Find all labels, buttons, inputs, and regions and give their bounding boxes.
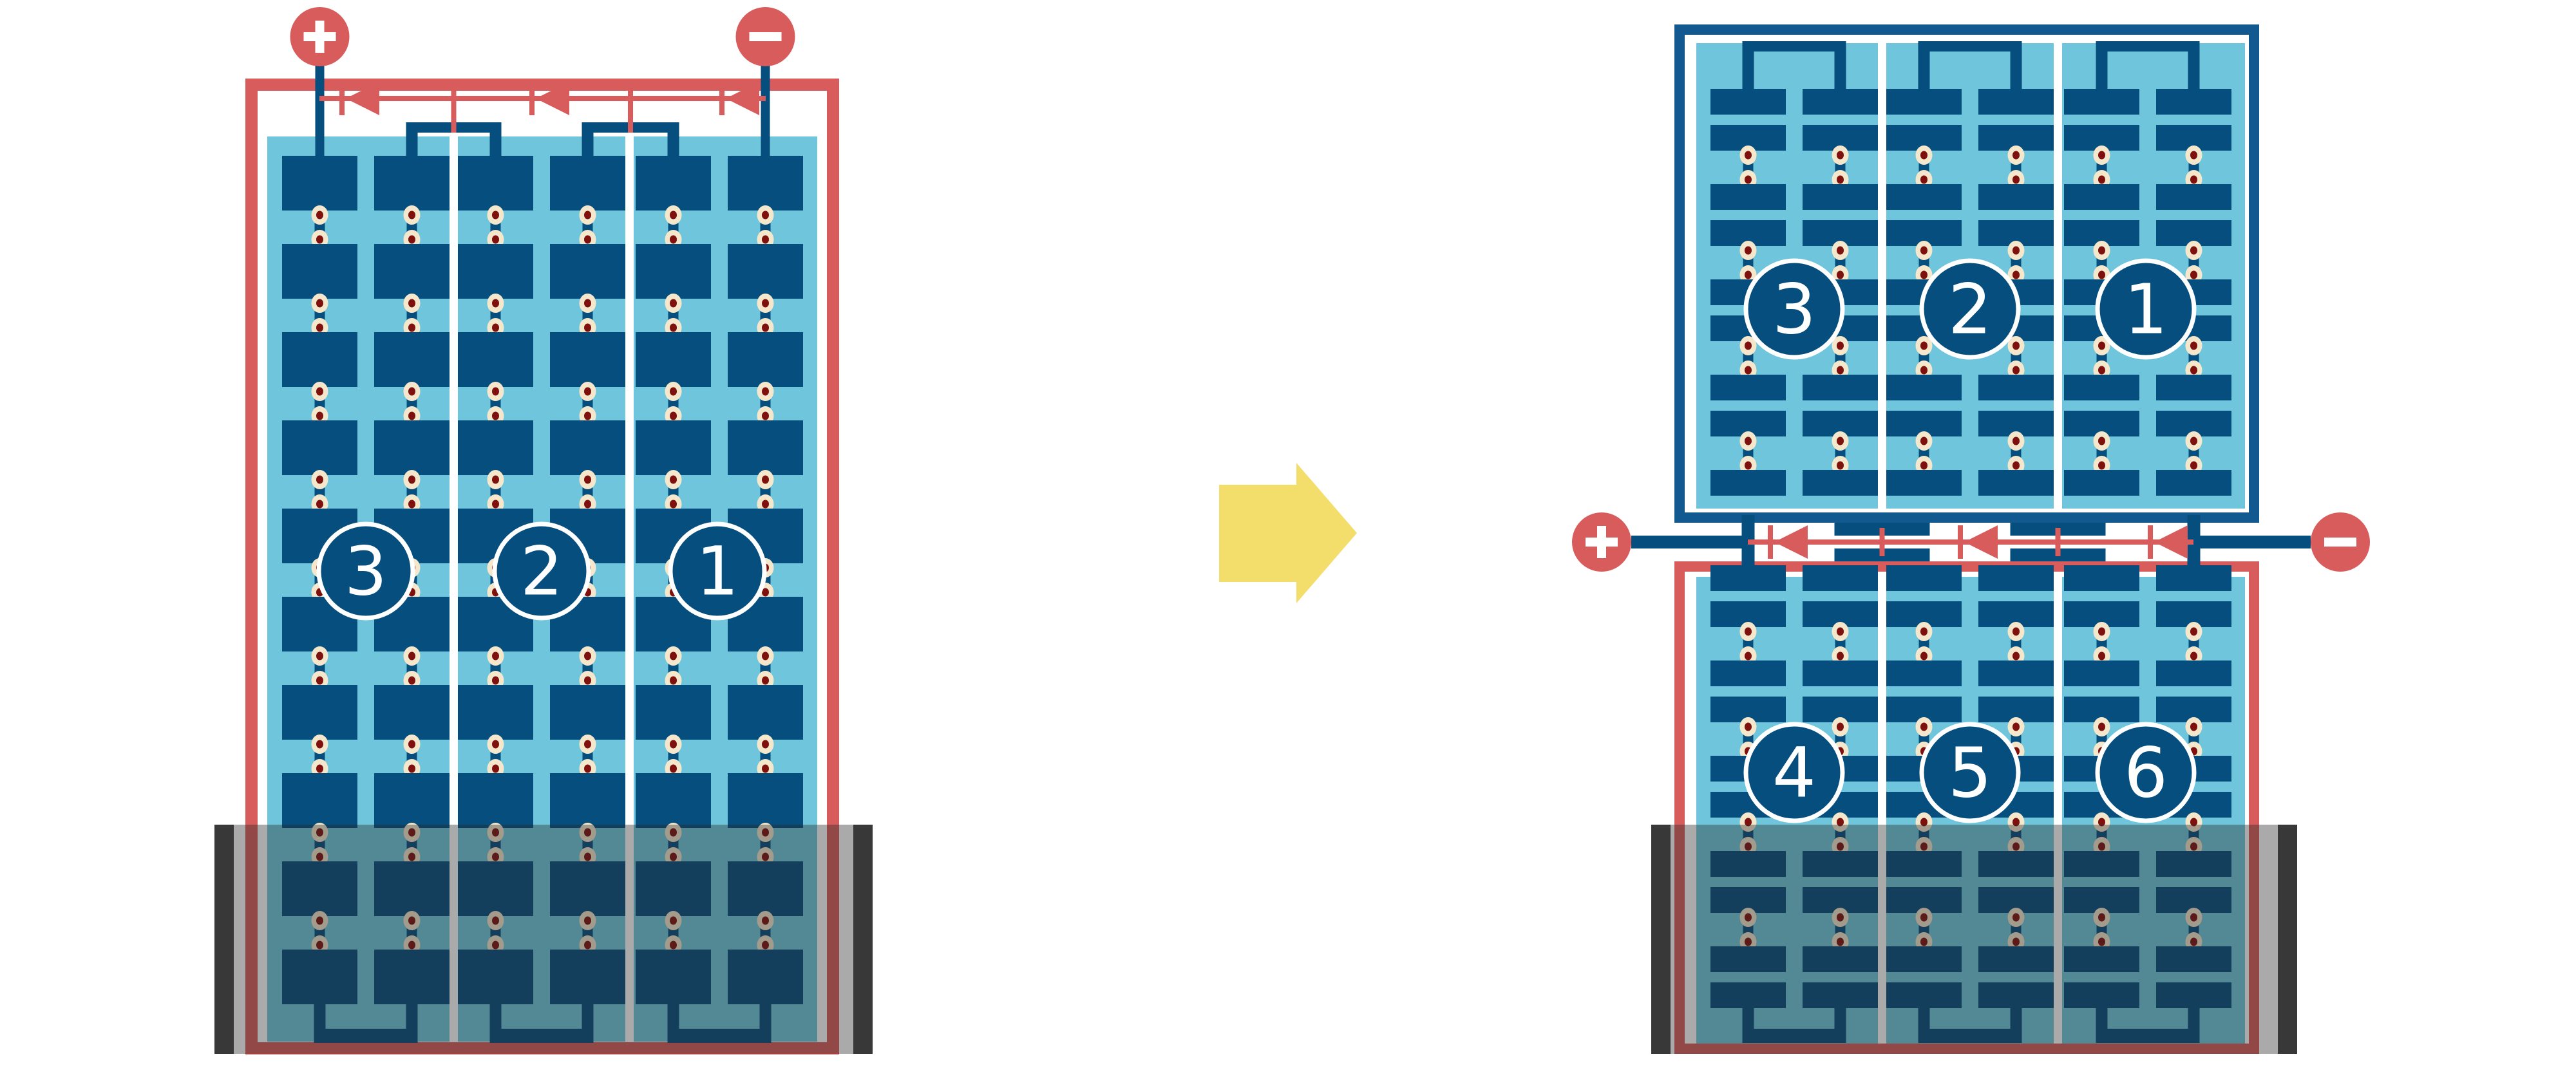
solar-cell: [550, 244, 625, 299]
solar-cell: [2064, 470, 2139, 496]
solder-dot-core: [316, 412, 323, 420]
solder-dot-core: [670, 324, 677, 332]
solder-dot-core: [316, 740, 323, 749]
solar-cell: [1710, 660, 1786, 686]
string-divider: [2054, 43, 2062, 509]
solder-dot-core: [2098, 366, 2105, 375]
solder-dot-core: [670, 765, 677, 773]
solar-cell: [374, 332, 450, 387]
solder-dot-core: [316, 388, 323, 396]
left-plus-terminal: [290, 7, 350, 66]
solar-cell: [1886, 184, 1962, 210]
solder-dot-core: [762, 299, 769, 308]
solder-dot-core: [762, 388, 769, 396]
solder-dot-core: [670, 388, 677, 396]
solder-dot-core: [1837, 247, 1844, 255]
solar-cell: [282, 244, 357, 299]
solder-dot-core: [316, 476, 323, 484]
string-bridge-top: [1743, 41, 1846, 52]
solder-dot-core: [408, 211, 415, 220]
diode-triangle-icon: [2154, 525, 2188, 559]
solder-dot-core: [1920, 176, 1927, 184]
right-shadow-post-right: [2278, 825, 2297, 1054]
solder-dot-core: [316, 677, 323, 685]
minus-icon: [750, 32, 782, 41]
solder-dot-core: [2190, 247, 2197, 255]
solar-cell: [1710, 184, 1786, 210]
solder-dot-core: [408, 412, 415, 420]
solder-dot-core: [2012, 366, 2020, 375]
solder-dot-core: [670, 677, 677, 685]
solar-cell: [2156, 89, 2231, 115]
solar-cell: [1978, 375, 2054, 400]
solder-dot-core: [408, 236, 415, 244]
solar-cell: [1710, 89, 1786, 115]
solar-cell: [282, 685, 357, 740]
solder-dot-core: [316, 211, 323, 220]
solder-dot-core: [762, 412, 769, 420]
solder-dot-core: [492, 765, 499, 773]
bridge-leg: [1918, 50, 1930, 89]
solder-dot-core: [2098, 462, 2105, 470]
solder-dot-core: [408, 299, 415, 308]
minus-terminal-wire: [2200, 536, 2311, 548]
solar-cell: [550, 685, 625, 740]
solder-dot-core: [316, 765, 323, 773]
solder-dot-core: [1920, 366, 1927, 375]
plus-terminal-wire: [1631, 536, 1742, 548]
solar-cell: [728, 420, 803, 475]
solder-dot-core: [670, 211, 677, 220]
solder-dot-core: [492, 476, 499, 484]
solder-dot-core: [1837, 437, 1844, 445]
bridge-leg: [582, 131, 594, 157]
solder-dot-core: [1745, 652, 1752, 660]
junction-plus-terminal: [1572, 512, 1631, 572]
minus-icon: [2324, 538, 2356, 547]
solder-dot-core: [584, 500, 591, 509]
solder-dot-core: [2190, 271, 2197, 279]
solder-dot-core: [2098, 437, 2105, 445]
solder-dot-core: [408, 388, 415, 396]
solder-dot-core: [316, 324, 323, 332]
solder-dot-core: [670, 412, 677, 420]
solder-dot-core: [1837, 151, 1844, 160]
solder-dot-core: [762, 740, 769, 749]
solder-dot-core: [2098, 151, 2105, 160]
solder-dot-core: [670, 740, 677, 749]
solar-cell: [636, 420, 711, 475]
string-number-label: 2: [520, 532, 563, 610]
diode-cathode-bar: [719, 82, 724, 115]
solder-dot-core: [1745, 462, 1752, 470]
solder-dot-core: [1745, 151, 1752, 160]
solder-dot-core: [2012, 437, 2020, 445]
solar-cell: [282, 773, 357, 828]
solar-cell: [282, 156, 357, 211]
solder-dot-core: [1920, 652, 1927, 660]
solar-cell: [2156, 184, 2231, 210]
solder-dot-core: [1745, 723, 1752, 731]
left-shadow-post-right: [853, 825, 873, 1054]
solder-dot-core: [1920, 462, 1927, 470]
solar-cell: [2156, 470, 2231, 496]
solder-dot-core: [1920, 342, 1927, 350]
solder-dot-core: [2098, 271, 2105, 279]
solder-dot-core: [1837, 176, 1844, 184]
solar-shading-diagram: 321321456: [0, 0, 2576, 1068]
solder-dot-core: [1745, 247, 1752, 255]
solder-dot-core: [1920, 271, 1927, 279]
solar-cell: [636, 332, 711, 387]
solder-dot-core: [584, 412, 591, 420]
junction-bypass-diode-line: [1748, 525, 2193, 559]
string-number-label: 2: [1948, 270, 1992, 350]
solar-cell: [550, 332, 625, 387]
solder-dot-core: [492, 299, 499, 308]
bridge-leg: [668, 131, 679, 157]
solar-cell: [1710, 375, 1786, 400]
solar-cell: [374, 685, 450, 740]
string-number-label: 1: [696, 532, 739, 610]
solder-dot-core: [492, 740, 499, 749]
solder-dot-core: [762, 236, 769, 244]
string-number-label: 1: [2124, 270, 2168, 350]
solder-dot-core: [2098, 628, 2105, 636]
solar-cell: [1886, 565, 1962, 591]
solder-dot-core: [408, 740, 415, 749]
diode-cathode-bar: [2148, 525, 2153, 559]
solder-dot-core: [762, 652, 769, 660]
string-number-label: 5: [1948, 733, 1992, 813]
solar-cell: [2064, 184, 2139, 210]
solder-dot-core: [584, 740, 591, 749]
solar-cell: [374, 244, 450, 299]
solder-dot-core: [408, 677, 415, 685]
solar-cell: [1803, 660, 1878, 686]
solar-cell: [1978, 184, 2054, 210]
solar-cell: [1803, 89, 1878, 115]
string-number-label: 3: [345, 532, 387, 610]
solar-cell: [2064, 660, 2139, 686]
solder-dot-core: [762, 211, 769, 220]
solder-dot-core: [316, 299, 323, 308]
solar-cell: [2156, 375, 2231, 400]
solder-dot-core: [316, 236, 323, 244]
solder-dot-core: [408, 500, 415, 509]
solder-dot-core: [1837, 342, 1844, 350]
solder-dot-core: [408, 765, 415, 773]
solder-dot-core: [2098, 723, 2105, 731]
solder-dot-core: [584, 765, 591, 773]
solar-cell: [636, 156, 711, 211]
bridge-leg: [1743, 50, 1754, 89]
solar-cell: [728, 773, 803, 828]
right-shadow-overlay: [1651, 825, 2297, 1054]
solder-dot-core: [492, 500, 499, 509]
solar-cell: [728, 244, 803, 299]
solder-dot-core: [1920, 151, 1927, 160]
solar-cell: [2156, 660, 2231, 686]
solder-dot-core: [1920, 723, 1927, 731]
solar-cell: [458, 773, 533, 828]
solar-cell: [550, 420, 625, 475]
solder-dot-core: [584, 324, 591, 332]
solar-cell: [458, 420, 533, 475]
bridge-leg: [490, 131, 502, 157]
solar-cell: [458, 685, 533, 740]
diode-tap-tick: [2056, 528, 2061, 556]
plus-terminal-wire: [316, 65, 325, 162]
solder-dot-core: [2098, 247, 2105, 255]
solder-dot-core: [1837, 628, 1844, 636]
solder-dot-core: [2012, 151, 2020, 160]
solder-dot-core: [1837, 462, 1844, 470]
solder-dot-core: [492, 388, 499, 396]
bridge-leg: [2096, 50, 2108, 89]
bridge-leg: [2011, 50, 2022, 89]
bridge-leg: [1835, 50, 1846, 89]
diode-triangle-icon: [1964, 525, 1998, 559]
solar-cell: [1978, 565, 2054, 591]
solar-cell: [1886, 470, 1962, 496]
solder-dot-core: [584, 652, 591, 660]
solder-dot-core: [2190, 176, 2197, 184]
solar-cell: [1803, 470, 1878, 496]
solder-dot-core: [2012, 247, 2020, 255]
diode-triangle-icon: [1774, 525, 1808, 559]
solar-cell: [374, 420, 450, 475]
solder-dot-core: [1745, 437, 1752, 445]
solder-dot-core: [1745, 271, 1752, 279]
right-shadow-post-left: [1651, 825, 1671, 1054]
diode-cathode-bar: [529, 82, 535, 115]
solder-dot-core: [1920, 247, 1927, 255]
string-number-label: 4: [1772, 733, 1816, 813]
solder-dot-core: [2012, 628, 2020, 636]
solder-dot-core: [1745, 366, 1752, 375]
solar-cell: [1886, 89, 1962, 115]
solder-dot-core: [584, 677, 591, 685]
solder-dot-core: [670, 500, 677, 509]
solder-dot-core: [408, 476, 415, 484]
solar-cell: [2064, 89, 2139, 115]
solder-dot-core: [492, 324, 499, 332]
diode-cathode-bar: [1958, 525, 1963, 559]
solder-dot-core: [584, 211, 591, 220]
solder-dot-core: [762, 500, 769, 509]
bridge-leg: [2188, 50, 2200, 89]
bridge-leg: [406, 131, 418, 157]
solar-cell: [550, 773, 625, 828]
solder-dot-core: [2012, 176, 2020, 184]
solar-cell: [550, 156, 625, 211]
solder-dot-core: [2190, 628, 2197, 636]
diode-tap-tick: [1880, 528, 1885, 556]
solder-dot-core: [2190, 437, 2197, 445]
solder-dot-core: [670, 476, 677, 484]
solder-dot-core: [2190, 342, 2197, 350]
solder-dot-core: [1745, 342, 1752, 350]
solar-cell: [728, 156, 803, 211]
solar-cell: [1978, 89, 2054, 115]
solder-dot-core: [492, 677, 499, 685]
diagram-svg: 321321456: [0, 0, 2576, 1068]
string-divider: [1878, 43, 1886, 509]
solar-cell: [2064, 375, 2139, 400]
solder-dot-core: [762, 677, 769, 685]
solar-cell: [636, 685, 711, 740]
solar-cell: [458, 156, 533, 211]
solder-dot-core: [492, 412, 499, 420]
solar-cell: [1710, 470, 1786, 496]
solder-dot-core: [762, 324, 769, 332]
solar-cell: [636, 773, 711, 828]
solar-cell: [728, 685, 803, 740]
solar-cell: [1978, 660, 2054, 686]
left-shadow-post-left: [214, 825, 234, 1054]
diode-tap-stub: [451, 89, 457, 133]
junction-minus-terminal: [2311, 512, 2370, 572]
solder-dot-core: [1920, 437, 1927, 445]
diode-tap-stub: [628, 89, 633, 133]
solder-dot-core: [2190, 723, 2197, 731]
string-number-label: 6: [2124, 733, 2168, 813]
plus-icon-vertical: [1597, 526, 1606, 558]
solder-dot-core: [2190, 366, 2197, 375]
solar-cell: [1803, 565, 1878, 591]
solar-cell: [374, 156, 450, 211]
solar-cell: [1978, 470, 2054, 496]
solar-cell: [1803, 184, 1878, 210]
solder-dot-core: [316, 500, 323, 509]
string-bridge-top: [1918, 41, 2022, 52]
solder-dot-core: [408, 652, 415, 660]
solder-dot-core: [1837, 271, 1844, 279]
solder-dot-core: [492, 211, 499, 220]
solder-dot-core: [2012, 652, 2020, 660]
solder-dot-core: [2098, 176, 2105, 184]
solder-dot-core: [2098, 342, 2105, 350]
solar-cell: [282, 420, 357, 475]
solder-dot-core: [762, 476, 769, 484]
solder-dot-core: [1920, 628, 1927, 636]
solder-dot-core: [670, 652, 677, 660]
solder-dot-core: [2190, 151, 2197, 160]
solar-cell: [1803, 375, 1878, 400]
solder-dot-core: [2012, 462, 2020, 470]
solder-dot-core: [1745, 176, 1752, 184]
solder-dot-core: [492, 652, 499, 660]
diode-cathode-bar: [339, 82, 345, 115]
plus-icon-vertical: [316, 21, 325, 53]
solder-dot-core: [584, 236, 591, 244]
solder-dot-core: [1837, 366, 1844, 375]
solder-dot-core: [2098, 652, 2105, 660]
solder-dot-core: [584, 476, 591, 484]
solder-dot-core: [1837, 652, 1844, 660]
solar-cell: [1886, 660, 1962, 686]
solder-dot-core: [584, 299, 591, 308]
solder-dot-core: [1837, 723, 1844, 731]
solder-dot-core: [2190, 462, 2197, 470]
solder-dot-core: [762, 765, 769, 773]
left-minus-terminal: [736, 7, 795, 66]
string-bridge-top: [2096, 41, 2200, 52]
solder-dot-core: [316, 652, 323, 660]
solar-cell: [374, 773, 450, 828]
solder-dot-core: [670, 299, 677, 308]
solar-cell: [728, 332, 803, 387]
solar-cell: [2064, 565, 2139, 591]
solder-dot-core: [2012, 271, 2020, 279]
left-shadow-overlay: [214, 825, 873, 1054]
diode-cathode-bar: [1768, 525, 1773, 559]
solder-dot-core: [408, 324, 415, 332]
solar-cell: [636, 244, 711, 299]
transform-arrow-icon: [1219, 463, 1357, 603]
solar-cell: [458, 244, 533, 299]
solar-cell: [282, 332, 357, 387]
solder-dot-core: [2012, 342, 2020, 350]
solar-cell: [1886, 375, 1962, 400]
solder-dot-core: [492, 236, 499, 244]
minus-terminal-wire: [761, 65, 770, 162]
solder-dot-core: [2190, 652, 2197, 660]
solder-dot-core: [2012, 723, 2020, 731]
solder-dot-core: [670, 236, 677, 244]
string-number-label: 3: [1772, 270, 1816, 350]
solar-cell: [458, 332, 533, 387]
solder-dot-core: [1745, 628, 1752, 636]
right-top-panel: 321: [1680, 30, 2254, 518]
solder-dot-core: [584, 388, 591, 396]
